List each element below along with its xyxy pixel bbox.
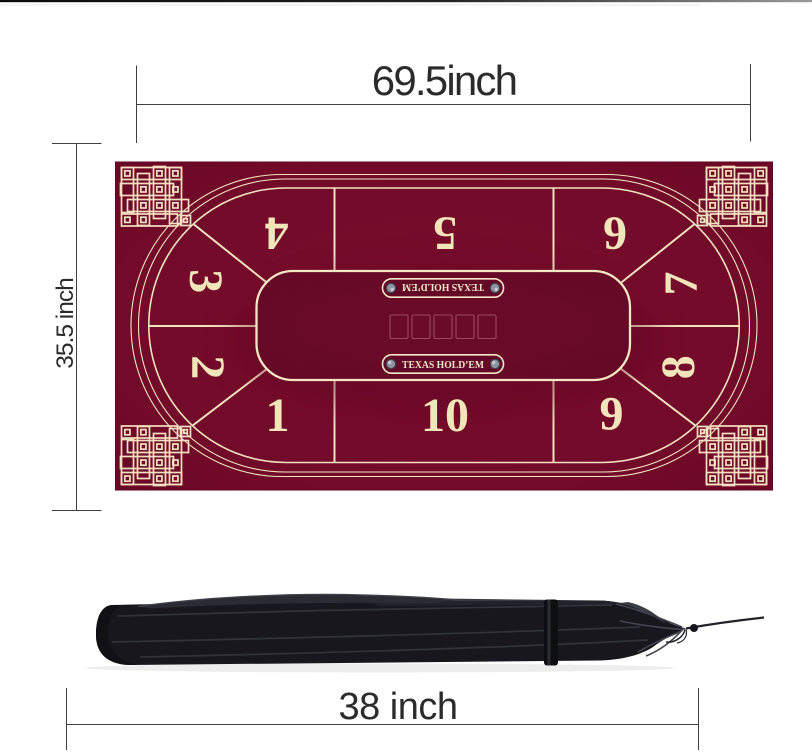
svg-text:38 inch: 38 inch [338,686,457,728]
svg-text:4: 4 [265,207,289,260]
svg-text:TEXAS HOLD’EM: TEXAS HOLD’EM [402,359,485,371]
svg-text:35.5 inch: 35.5 inch [52,278,79,369]
svg-text:10: 10 [421,389,469,442]
svg-text:7: 7 [655,272,708,296]
svg-text:9: 9 [600,388,624,441]
svg-text:69.5inch: 69.5inch [372,57,516,104]
svg-text:TEXAS HOLD’EM: TEXAS HOLD’EM [401,281,484,293]
svg-text:5: 5 [433,207,457,260]
svg-text:1: 1 [266,389,290,442]
svg-text:8: 8 [652,355,705,379]
svg-text:6: 6 [603,207,627,260]
svg-text:2: 2 [181,355,234,379]
svg-text:3: 3 [179,269,232,293]
